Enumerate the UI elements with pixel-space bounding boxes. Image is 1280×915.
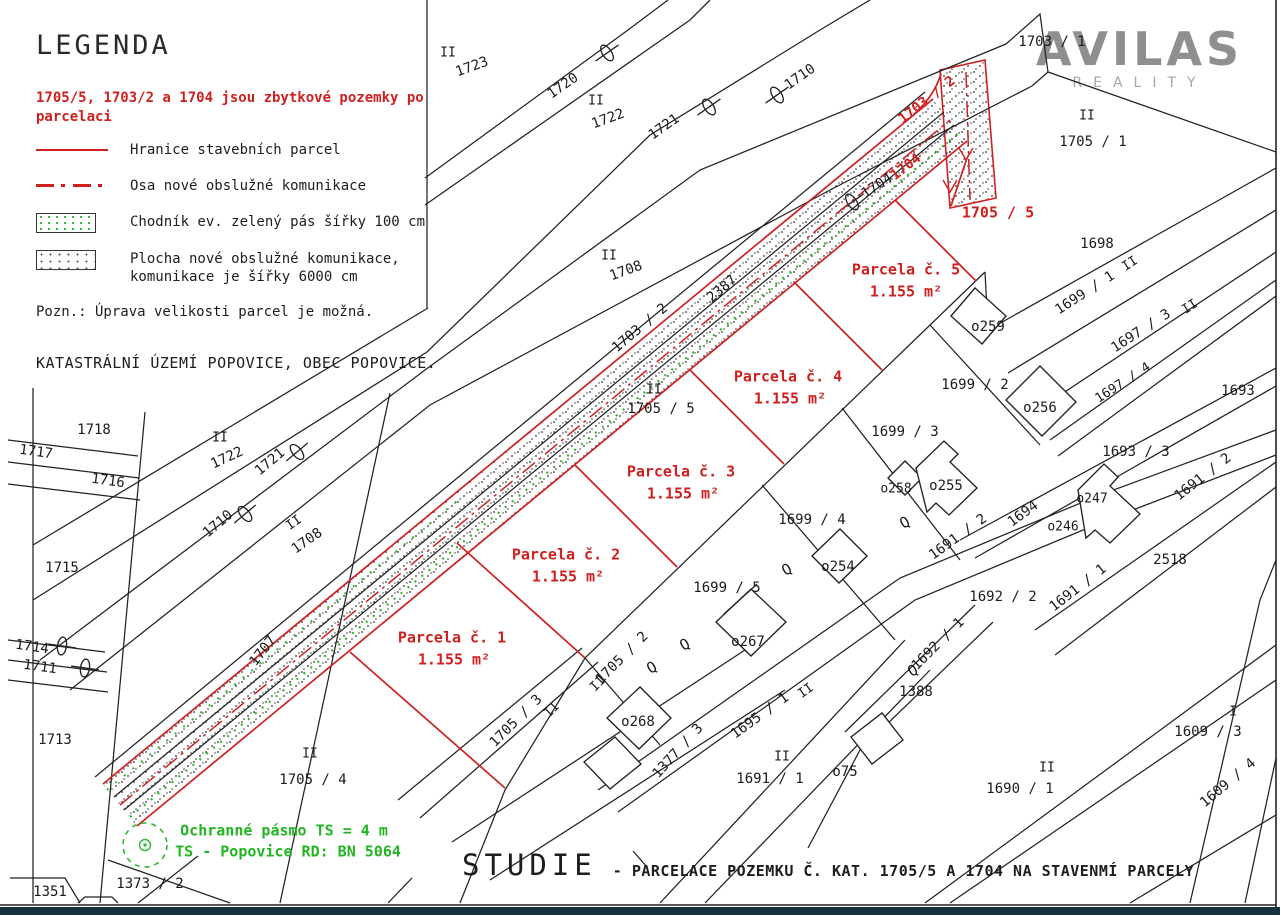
drawing-sheet: AVILAS REALITY [0, 0, 1280, 915]
map-label: o268 [621, 715, 655, 729]
map-label: Parcela č. 4 [734, 370, 842, 385]
map-label: 1722 [590, 107, 626, 132]
map-label: 1692 / 1 [909, 615, 967, 673]
map-label: 1704 [888, 151, 923, 183]
map-label: 1699 / 5 [693, 581, 760, 595]
map-label: 1703 / 1 [1018, 35, 1085, 49]
dot-stipple-swatch [36, 250, 96, 270]
legend: LEGENDA 1705/5, 1703/2 a 1704 jsou zbytk… [36, 30, 466, 372]
legend-item-sidewalk: Chodník ev. zelený pás šířky 100 cm [36, 213, 466, 233]
map-label: 1720 [545, 71, 581, 102]
map-label: Parcela č. 2 [512, 548, 620, 563]
map-label: 1705 / 4 [279, 773, 346, 787]
map-label: 1707 [247, 633, 279, 668]
map-label: 1716 [90, 472, 125, 491]
map-label: 1691 / 2 [1172, 451, 1234, 504]
map-label: 1691 / 2 [927, 512, 990, 563]
map-label: II [1039, 762, 1055, 775]
map-label: Parcela č. 5 [852, 263, 960, 278]
map-label: 1703 / 2 [610, 301, 671, 355]
map-label: 1699 / 3 [871, 425, 938, 439]
map-label: 1710 [201, 508, 236, 540]
map-label: Q [677, 636, 692, 654]
map-label: o246 [1047, 521, 1078, 534]
map-label: 1694 [1005, 498, 1041, 529]
map-label: 1.155 m² [870, 285, 942, 300]
sheet-subtitle: - PARCELACE POZEMKU Č. KAT. 1705/5 A 170… [613, 862, 1194, 880]
map-label: Q [897, 514, 912, 532]
map-label: II [1180, 297, 1200, 316]
legend-item-road-area: Plocha nové obslužné komunikace, komunik… [36, 250, 466, 288]
legend-item-boundary: Hranice stavebních parcel [36, 141, 466, 160]
map-label: 1722 [209, 445, 245, 472]
map-label: o259 [971, 320, 1005, 334]
map-label: o256 [1023, 401, 1057, 415]
map-label: 2518 [1153, 553, 1187, 567]
map-label: o75 [832, 765, 857, 779]
map-label: 1692 / 2 [969, 590, 1036, 604]
map-label: 1704 [859, 171, 895, 201]
map-label: Ochranné pásmo TS = 4 m [180, 824, 388, 839]
map-label: o267 [731, 635, 765, 649]
map-label: 1711 [22, 658, 57, 677]
map-label: 2387 [705, 273, 740, 305]
map-label: 1705 / 5 [627, 402, 694, 416]
map-label: 1351 [33, 885, 67, 899]
map-label: 1714 [14, 638, 49, 657]
footer-bar [0, 907, 1280, 915]
map-label: 1693 [1221, 384, 1255, 398]
map-label: 1.155 m² [532, 570, 604, 585]
map-label: 1.155 m² [647, 487, 719, 502]
map-label: Q [779, 561, 794, 579]
legend-item-label: Hranice stavebních parcel [130, 141, 341, 160]
map-label: 1705 / 5 [962, 206, 1034, 221]
legend-title: LEGENDA [36, 30, 466, 61]
map-label: 1373 / 2 [116, 877, 183, 891]
map-label: o254 [821, 560, 855, 574]
map-label: 1.155 m² [418, 653, 490, 668]
legend-item-label: Plocha nové obslužné komunikace, komunik… [130, 250, 450, 288]
cadastre-note: KATASTRÁLNÍ ÚZEMÍ POPOVICE, OBEC POPOVIC… [36, 354, 466, 372]
map-label: Q [644, 659, 659, 677]
map-label: 1699 / 2 [941, 378, 1008, 392]
map-label: 1693 / 3 [1102, 445, 1169, 459]
map-label: 1697 / 3 [1109, 307, 1173, 355]
map-label: I [1229, 706, 1237, 719]
map-label: II [601, 250, 617, 263]
boundary-line-swatch [36, 149, 108, 151]
title-block: STUDIE - PARCELACE POZEMKU Č. KAT. 1705/… [462, 848, 1194, 882]
map-label: 1388 [899, 685, 933, 699]
legend-note: Pozn.: Úprava velikosti parcel je možná. [36, 304, 466, 320]
map-label: II [774, 751, 790, 764]
map-label: 1.155 m² [754, 392, 826, 407]
map-label: 1713 [38, 733, 72, 747]
map-label: 1721 [646, 112, 682, 143]
map-label: o258 [880, 483, 911, 496]
legend-item-axis: Osa nové obslužné komunikace [36, 177, 466, 196]
map-label: 1377 / 3 [650, 721, 706, 780]
map-label: 1703 / 2 [896, 74, 958, 127]
axis-dashdot-swatch [36, 184, 110, 187]
map-label: II [1079, 110, 1095, 123]
map-label: 1690 / 1 [986, 782, 1053, 796]
map-label: 1698 [1080, 237, 1114, 251]
map-label: 1697 / 4 [1093, 360, 1153, 405]
legend-item-label: Chodník ev. zelený pás šířky 100 cm [130, 213, 425, 232]
map-label: 1715 [45, 561, 79, 575]
map-label: II [212, 432, 228, 445]
map-label: 1695 / 1 [729, 691, 792, 742]
map-label: 1721 [253, 446, 288, 478]
map-label: II [796, 681, 816, 701]
map-label: II [646, 384, 662, 397]
map-label: II [284, 513, 304, 533]
map-label: II [302, 748, 318, 761]
legend-item-label: Osa nové obslužné komunikace [130, 177, 366, 196]
map-label: II [1120, 254, 1140, 273]
map-label: o247 [1076, 493, 1107, 506]
map-label: Parcela č. 1 [398, 631, 506, 646]
map-label: 1691 / 1 [1047, 562, 1109, 615]
map-label: 1609 / 3 [1174, 725, 1241, 739]
map-label: 1699 / 1 [1053, 269, 1117, 317]
map-label: 1705 / 1 [1059, 135, 1126, 149]
sheet-title: STUDIE [462, 848, 597, 882]
map-label: TS - Popovice RD: BN 5064 [175, 845, 401, 860]
map-label: 1609 / 4 [1198, 756, 1259, 810]
map-label: 1710 [782, 62, 818, 93]
map-label: 1717 [18, 443, 53, 462]
map-label: II [588, 95, 604, 108]
map-label: o255 [929, 479, 963, 493]
map-label: 1691 / 1 [736, 772, 803, 786]
map-label: 1718 [77, 423, 111, 437]
map-label: 1705 / 3 [487, 692, 545, 750]
green-stipple-swatch [36, 213, 96, 233]
map-label: 1699 / 4 [778, 513, 845, 527]
map-label: Parcela č. 3 [627, 465, 735, 480]
legend-red-note: 1705/5, 1703/2 a 1704 jsou zbytkové poze… [36, 89, 446, 127]
